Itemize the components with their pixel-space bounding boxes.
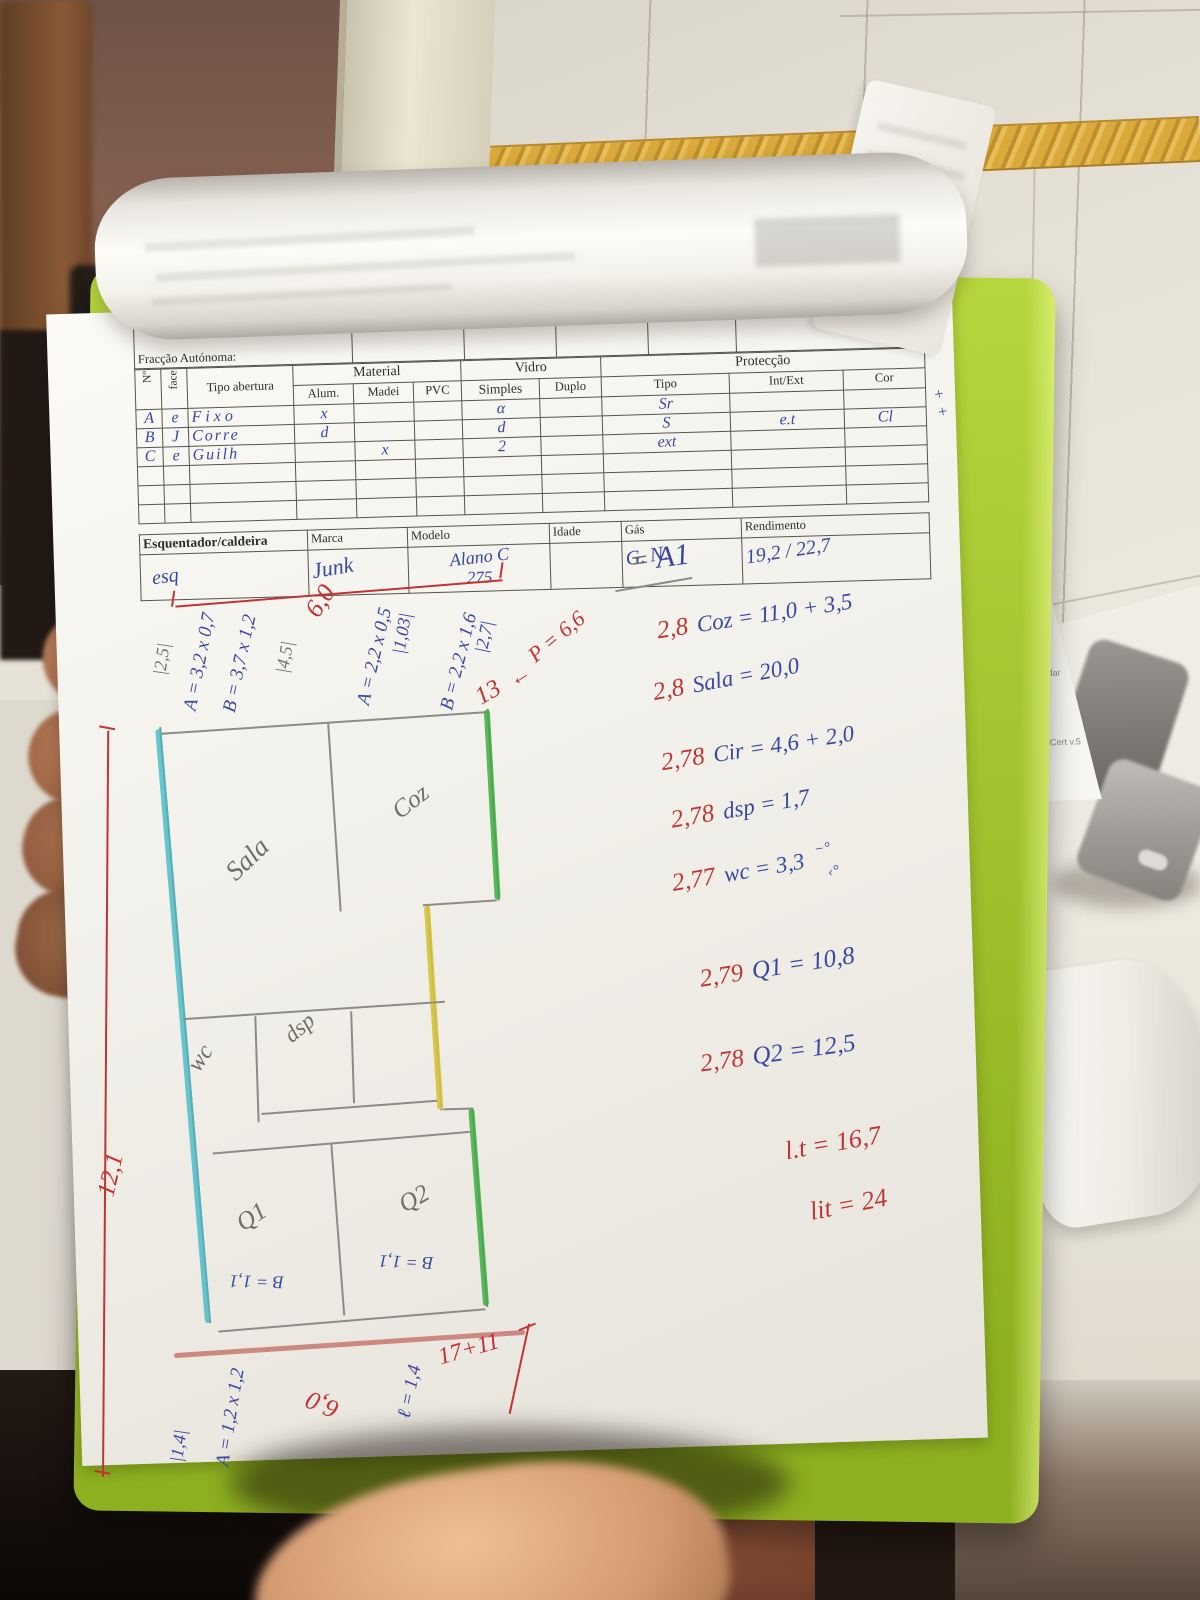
- calc-body: Sala = 20,0: [690, 653, 801, 698]
- plan-wall-top: [159, 711, 488, 735]
- plan-wall-sala-bottom: [183, 1001, 445, 1020]
- cell-face: e: [162, 408, 189, 428]
- column-header-duplo: Duplo: [539, 377, 602, 399]
- dim-note: A = 1,2 x 1,2: [212, 1367, 250, 1468]
- curled-first-page: [92, 150, 969, 342]
- cell-pvc: [414, 420, 463, 440]
- dim-note-flipped: B = 1,1: [378, 1250, 433, 1273]
- survey-sheet: Fracção Autónoma: Ano de Const: Altitude…: [46, 286, 988, 1466]
- column-header-idade: Idade: [549, 521, 622, 543]
- column-header-cor: Cor: [843, 368, 926, 390]
- cell-n: C: [137, 447, 164, 467]
- cell-face: e: [163, 446, 190, 466]
- plan-wall-dsp-right: [350, 1011, 355, 1103]
- plan-wall-left-teal-highlight: [155, 729, 211, 1323]
- calc-body: dsp = 1,7: [721, 784, 812, 824]
- cell-n: A: [136, 409, 163, 429]
- cell-cor: Cl: [844, 407, 926, 428]
- cell-simples: 2: [463, 437, 542, 458]
- calc-body: Cir = 4,6 + 2,0: [711, 721, 855, 767]
- cell-duplo: [540, 397, 603, 418]
- plan-wall-sala-coz-divider: [327, 722, 342, 912]
- red-dimension-line-left: [102, 731, 109, 1477]
- calc-coefficient: 2,78: [659, 743, 706, 776]
- dim-note: |4,5|: [272, 639, 298, 675]
- column-header-alum: Alum.: [293, 384, 354, 406]
- room-label-coz: Coz: [387, 779, 435, 825]
- column-header-face: face: [168, 370, 180, 389]
- openings-table: Nº face Tipo abertura Material Vidro Pro…: [134, 347, 929, 524]
- hw-calc-line: 2,8Sala = 20,0: [651, 652, 802, 707]
- calc-coefficient: 2,78: [669, 800, 717, 834]
- dim-label-13: 13: [470, 674, 506, 711]
- column-header-pvc: PVC: [413, 381, 462, 402]
- cell-n: B: [136, 428, 163, 448]
- faint-print-line: [156, 252, 576, 282]
- cell-madei: x: [355, 440, 416, 461]
- calc-coefficient: 2,79: [698, 959, 745, 992]
- dim-note: ℓ = 1,4: [394, 1363, 427, 1420]
- plan-wall-dsp-bottom: [261, 1100, 437, 1115]
- room-label-q2: Q2: [394, 1180, 434, 1219]
- cell-duplo: [540, 416, 603, 437]
- hw-rendimento: 19,2 / 22,7: [744, 534, 832, 570]
- red-dimension-line-bottom-right: [509, 1324, 530, 1414]
- calc-coefficient: 2,8: [651, 674, 687, 706]
- arrow-left-icon: ←: [504, 659, 536, 693]
- cell-cor: [844, 388, 926, 409]
- dim-label-p66: P = 6,6: [523, 605, 591, 667]
- plan-wall-yellow-highlight: [424, 906, 444, 1110]
- calc-note: ‹°: [827, 863, 841, 881]
- calc-body: wc = 3,3: [722, 849, 806, 887]
- hw-calc-line: 2,78Q2 = 12,5: [699, 1029, 858, 1078]
- hw-heater-type: esq: [151, 564, 180, 590]
- hw-modelo-2: 275: [467, 567, 493, 588]
- hw-equals: =: [627, 543, 652, 578]
- dim-note: B = 3,7 x 1,2: [219, 613, 262, 715]
- hw-total-line: l.t = 16,7: [783, 1120, 884, 1166]
- cell-alum: x: [294, 404, 355, 425]
- plan-wall-q1-q2-divider: [330, 1144, 345, 1316]
- plan-wall-green-highlight-lower: [468, 1108, 489, 1306]
- plan-wall-bottom: [218, 1308, 485, 1332]
- calc-body: Q1 = 10,8: [750, 942, 857, 985]
- faint-print-line: [877, 122, 966, 150]
- kitchen-photo-scene: ambos guardar MobileDocProdCert v.5 Frac…: [0, 0, 1200, 1600]
- cell-pvc: [415, 439, 464, 459]
- calc-coefficient: 2,78: [699, 1045, 746, 1078]
- hw-total-line: lit = 24: [807, 1183, 889, 1227]
- faint-print-block: [754, 214, 901, 267]
- column-header-simples: Simples: [461, 379, 540, 401]
- cell-face: J: [162, 427, 189, 447]
- column-header-marca: Marca: [307, 527, 408, 550]
- cell-pvc: [414, 401, 463, 421]
- calc-note: −°: [813, 840, 832, 859]
- calc-body: Q2 = 12,5: [751, 1029, 857, 1070]
- dim-note-flipped: B = 1,1: [229, 1270, 284, 1292]
- survey-form: Fracção Autónoma: Ano de Const: Altitude…: [133, 294, 933, 601]
- cell-duplo: [541, 435, 604, 456]
- column-header-madei: Madei: [353, 382, 414, 404]
- heater-table: Esquentador/caldeira Marca Modelo Idade …: [139, 512, 932, 601]
- hw-calc-line: 2,8Coz = 11,0 + 3,5: [655, 587, 854, 645]
- dim-label-left: 12,1: [93, 1150, 130, 1199]
- plan-wall-q-top: [213, 1131, 470, 1155]
- calc-body: Coz = 11,0 + 3,5: [695, 588, 854, 637]
- faint-print-line: [152, 283, 452, 306]
- dimension-tick: [99, 725, 115, 730]
- dim-note: |2,5|: [149, 642, 174, 677]
- cell-cor: [845, 426, 927, 447]
- hw-calc-line: 2,77wc = 3,3 −° ‹°: [670, 841, 845, 898]
- dim-note: |1,4|: [166, 1428, 191, 1463]
- column-header-tipo-abertura: Tipo abertura: [187, 365, 294, 408]
- hw-plus-marks: + +: [932, 385, 950, 422]
- room-label-q1: Q1: [231, 1197, 272, 1237]
- cell-simples: α: [462, 399, 541, 420]
- hw-calc-line: 2,78Cir = 4,6 + 2,0: [659, 720, 856, 778]
- plan-wall-step-upper: [423, 899, 497, 906]
- hw-calc-line: 2,78dsp = 1,7: [669, 783, 812, 835]
- calc-coefficient: 2,77: [670, 863, 718, 897]
- faint-print-line: [145, 226, 475, 252]
- room-label-sala: Sala: [219, 831, 275, 887]
- hw-a1: A1: [654, 537, 691, 574]
- cell-madei: [354, 402, 415, 423]
- column-header-numero: Nº: [142, 371, 154, 383]
- cell-madei: [354, 421, 415, 442]
- room-label-dsp: dsp: [279, 1008, 320, 1048]
- hw-calc-line: 2,79Q1 = 10,8: [698, 942, 857, 994]
- cell-alum: d: [294, 423, 355, 444]
- cell-simples: d: [462, 418, 541, 439]
- calc-coefficient: 2,8: [655, 613, 690, 644]
- cell-alum: [295, 442, 356, 463]
- plan-wall-wc-dsp-divider: [254, 1016, 259, 1122]
- dim-note: A = 2,2 x 0,5: [353, 606, 397, 707]
- dim-note: A = 3,2 x 0,7: [180, 611, 221, 712]
- plan-wall-green-highlight-upper: [484, 710, 501, 900]
- dim-label-60-bottom: 6,0: [302, 1384, 344, 1424]
